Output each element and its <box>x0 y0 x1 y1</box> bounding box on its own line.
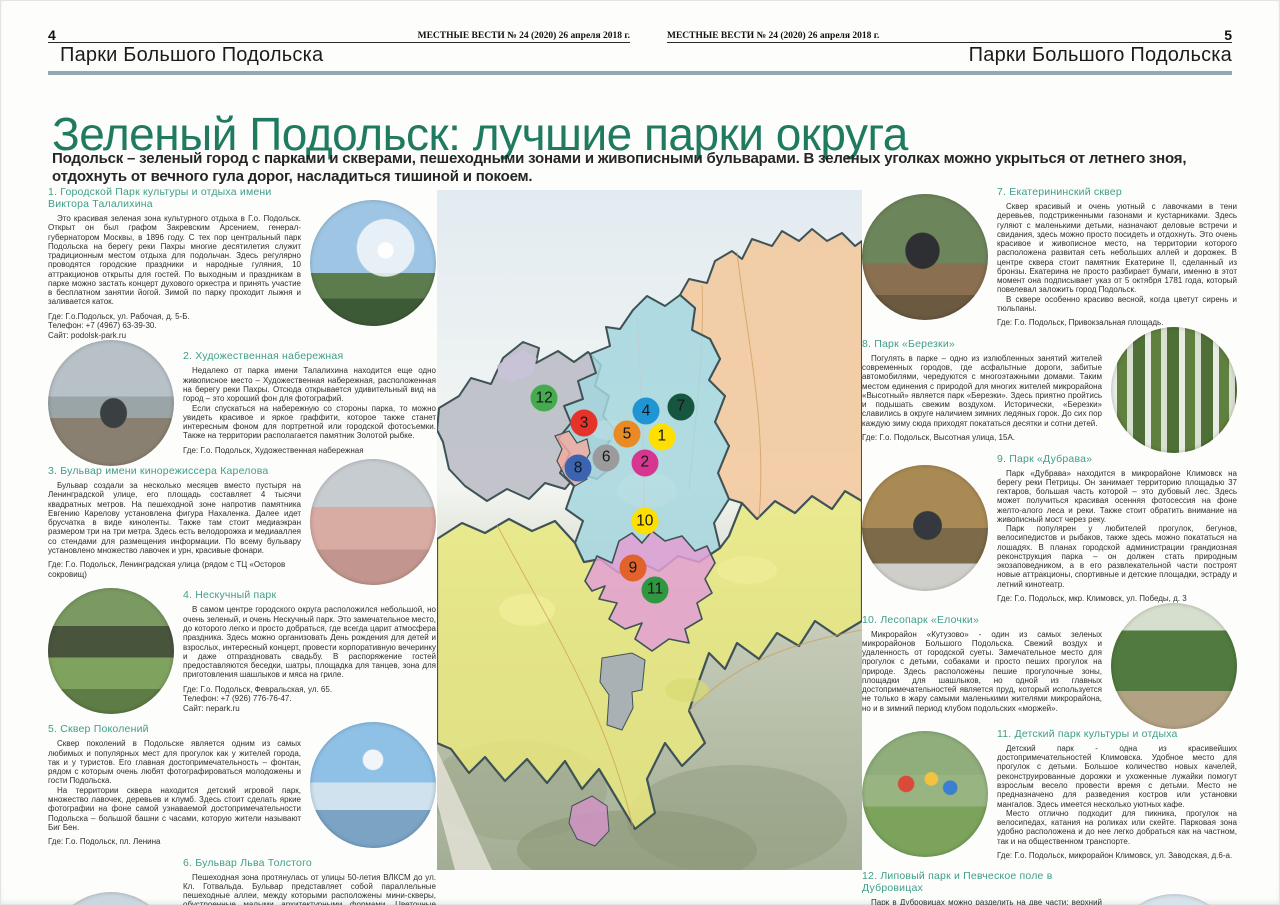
park-paragraph: В сквере особенно красиво весной, когда … <box>997 295 1237 314</box>
park-text: 11. Детский парк культуры и отдыха Детск… <box>997 728 1237 861</box>
park-body: Это красивая зеленая зона культурного от… <box>48 214 301 307</box>
park-body: Парк «Дубрава» находится в микрорайоне К… <box>997 469 1237 589</box>
column-left: 1. Городской Парк культуры и отдыха имен… <box>48 186 436 905</box>
park-footer: Где: Г.о. Подольск, Февральская, ул. 65.… <box>183 685 436 714</box>
lead-paragraph: Подольск – зеленый город с парками и скв… <box>52 150 1234 187</box>
park-location-line: Где: Г.о. Подольск, Ленинградская улица … <box>48 560 301 579</box>
park-location-line: Телефон: +7 (926) 776-76-47. <box>183 694 436 704</box>
park-body: Детский парк - одна из красивейших досто… <box>997 744 1237 846</box>
park-body: Пешеходная зона протянулась от улицы 50-… <box>183 873 436 905</box>
park-paragraph: Пешеходная зона протянулась от улицы 50-… <box>183 873 436 905</box>
park-item: 12. Липовый парк и Певческое поле в Дубр… <box>862 870 1237 905</box>
map-marker-10: 10 <box>631 508 658 535</box>
section-label-right: Парки Большого Подольска <box>969 44 1232 67</box>
park-location-line: Где: Г.о. Подольск, мкр. Климовск, ул. П… <box>997 594 1237 604</box>
park-text: 3. Бульвар имени кинорежиссера Карелова … <box>48 465 301 579</box>
photo-clock-tower-fountain <box>310 722 436 848</box>
newspaper-spread: 4 МЕСТНЫЕ ВЕСТИ № 24 (2020) 26 апреля 20… <box>0 0 1280 905</box>
park-item: 10. Лесопарк «Елочки» Микрорайон «Кутузо… <box>862 614 1237 718</box>
park-title: 1. Городской Парк культуры и отдыха имен… <box>48 186 301 210</box>
park-item: 2. Художественная набережная Недалеко от… <box>48 350 436 455</box>
park-location-line: Сайт: nepark.ru <box>183 704 436 714</box>
park-paragraph: Детский парк - одна из красивейших досто… <box>997 744 1237 809</box>
park-paragraph: Парк в Дубровицах можно разделить на две… <box>862 898 1102 905</box>
park-paragraph: Сквер поколений в Подольске является одн… <box>48 739 301 785</box>
photo-forest-path <box>1111 603 1237 729</box>
park-body: Сквер поколений в Подольске является одн… <box>48 739 301 832</box>
map-marker-8: 8 <box>565 455 592 482</box>
page-number-right: 5 <box>1224 28 1232 42</box>
park-item: 11. Детский парк культуры и отдыха Детск… <box>862 728 1237 861</box>
park-paragraph: Парк «Дубрава» находится в микрорайоне К… <box>997 469 1237 525</box>
photo-playground <box>862 731 988 857</box>
park-location-line: Где: Г.о. Подольск, микрорайон Климовск,… <box>997 851 1237 861</box>
park-text: 9. Парк «Дубрава» Парк «Дубрава» находит… <box>997 453 1237 604</box>
park-body: Сквер красивый и очень уютный с лавочкам… <box>997 202 1237 313</box>
park-text: 10. Лесопарк «Елочки» Микрорайон «Кутузо… <box>862 614 1102 718</box>
park-footer: Где: Г.о. Подольск, Художественная набер… <box>183 446 436 456</box>
park-location-line: Где: Г.о. Подольск, пл. Ленина <box>48 837 301 847</box>
park-item: 1. Городской Парк культуры и отдыха имен… <box>48 186 436 340</box>
park-paragraph: Парк популярен у любителей прогулок, бег… <box>997 524 1237 589</box>
map-marker-9: 9 <box>619 555 646 582</box>
photo-catherine-monument <box>862 194 988 320</box>
park-title: 8. Парк «Березки» <box>862 338 1102 350</box>
masthead-left: 4 МЕСТНЫЕ ВЕСТИ № 24 (2020) 26 апреля 20… <box>48 26 630 43</box>
park-location-line: Где: Г.о. Подольск, Февральская, ул. 65. <box>183 685 436 695</box>
park-location-line: Где: Г.о. Подольск, Художественная набер… <box>183 446 436 456</box>
map-marker-11: 11 <box>642 576 669 603</box>
park-location-line: Где: Г.о. Подольск, Высотная улица, 15А. <box>862 433 1102 443</box>
park-footer: Где: Г.о. Подольск, пл. Ленина <box>48 837 301 847</box>
park-paragraph: Погулять в парке – одно из излюбленных з… <box>862 354 1102 428</box>
park-item: 8. Парк «Березки» Погулять в парке – одн… <box>862 338 1237 443</box>
photo-embankment-monument <box>48 340 174 466</box>
park-text: 4. Нескучный парк В самом центре городск… <box>183 589 436 713</box>
park-footer: Где: Г.о. Подольск, микрорайон Климовск,… <box>997 851 1237 861</box>
park-footer: Где: Г.о. Подольск, Привокзальная площад… <box>997 318 1237 328</box>
park-location-line: Где: Г.о. Подольск, Привокзальная площад… <box>997 318 1237 328</box>
park-body: Микрорайон «Кутузово» - один из самых зе… <box>862 630 1102 713</box>
masthead-right: МЕСТНЫЕ ВЕСТИ № 24 (2020) 26 апреля 2018… <box>667 26 1232 43</box>
park-paragraph: Недалеко от парка имени Талалихина наход… <box>183 366 436 403</box>
park-text: 7. Екатерининский сквер Сквер красивый и… <box>997 186 1237 328</box>
column-right: 7. Екатерининский сквер Сквер красивый и… <box>862 186 1237 905</box>
park-body: В самом центре городского округа располо… <box>183 605 436 679</box>
park-paragraph: Микрорайон «Кутузово» - один из самых зе… <box>862 630 1102 713</box>
map-marker-5: 5 <box>613 421 640 448</box>
park-text: 12. Липовый парк и Певческое поле в Дубр… <box>862 870 1102 905</box>
photo-park-pavilion <box>48 588 174 714</box>
park-footer: Где: Г.о. Подольск, Ленинградская улица … <box>48 560 301 579</box>
park-paragraph: Место отлично подходит для пикника, прог… <box>997 809 1237 846</box>
photo-tolstoy-statue <box>48 892 174 905</box>
park-title: 4. Нескучный парк <box>183 589 436 601</box>
park-title: 9. Парк «Дубрава» <box>997 453 1237 465</box>
park-item: 6. Бульвар Льва Толстого Пешеходная зона… <box>48 857 436 905</box>
photo-dubrovitsy-aerial <box>1111 894 1237 905</box>
photo-boulevard-plaza <box>310 459 436 585</box>
park-title: 10. Лесопарк «Елочки» <box>862 614 1102 626</box>
park-item: 3. Бульвар имени кинорежиссера Карелова … <box>48 465 436 579</box>
photo-ferris-wheel <box>310 200 436 326</box>
park-item: 9. Парк «Дубрава» Парк «Дубрава» находит… <box>862 453 1237 604</box>
map-marker-7: 7 <box>667 393 694 420</box>
park-paragraph: Сквер красивый и очень уютный с лавочкам… <box>997 202 1237 295</box>
park-body: Погулять в парке – одно из излюбленных з… <box>862 354 1102 428</box>
map-marker-6: 6 <box>593 444 620 471</box>
park-text: 6. Бульвар Льва Толстого Пешеходная зона… <box>183 857 436 905</box>
park-paragraph: На территории сквера находится детский и… <box>48 786 301 832</box>
map-markers: 123456789101112 <box>437 190 862 870</box>
park-body: Бульвар создали за несколько месяцев вме… <box>48 481 301 555</box>
park-text: 8. Парк «Березки» Погулять в парке – одн… <box>862 338 1102 443</box>
map-marker-12: 12 <box>531 385 558 412</box>
park-footer: Где: Г.о. Подольск, Высотная улица, 15А. <box>862 433 1102 443</box>
park-title: 5. Сквер Поколений <box>48 723 301 735</box>
divider-rule <box>48 71 1232 75</box>
park-location-line: Телефон: +7 (4967) 63-39-30. <box>48 321 301 331</box>
park-title: 7. Екатерининский сквер <box>997 186 1237 198</box>
city-districts-map: 123456789101112 <box>437 190 862 870</box>
masthead-title-left: МЕСТНЫЕ ВЕСТИ № 24 (2020) 26 апреля 2018… <box>418 31 630 42</box>
park-title: 3. Бульвар имени кинорежиссера Карелова <box>48 465 301 477</box>
map-marker-3: 3 <box>571 410 598 437</box>
park-text: 2. Художественная набережная Недалеко от… <box>183 350 436 455</box>
photo-birch-forest <box>1111 327 1237 453</box>
park-paragraph: Бульвар создали за несколько месяцев вме… <box>48 481 301 555</box>
park-title: 11. Детский парк культуры и отдыха <box>997 728 1237 740</box>
park-footer: Где: Г.о.Подольск, ул. Рабочая, д. 5-Б.Т… <box>48 312 301 341</box>
page-number-left: 4 <box>48 28 56 42</box>
section-label-left: Парки Большого Подольска <box>60 44 323 67</box>
park-paragraph: Это красивая зеленая зона культурного от… <box>48 214 301 307</box>
park-text: 5. Сквер Поколений Сквер поколений в Под… <box>48 723 301 846</box>
park-body: Недалеко от парка имени Талалихина наход… <box>183 366 436 440</box>
park-item: 7. Екатерининский сквер Сквер красивый и… <box>862 186 1237 328</box>
map-marker-4: 4 <box>633 398 660 425</box>
map-marker-2: 2 <box>631 449 658 476</box>
park-text: 1. Городской Парк культуры и отдыха имен… <box>48 186 301 340</box>
park-title: 12. Липовый парк и Певческое поле в Дубр… <box>862 870 1102 894</box>
park-location-line: Где: Г.о.Подольск, ул. Рабочая, д. 5-Б. <box>48 312 301 322</box>
park-title: 6. Бульвар Льва Толстого <box>183 857 436 869</box>
park-title: 2. Художественная набережная <box>183 350 436 362</box>
map-marker-1: 1 <box>648 423 675 450</box>
masthead-title-right: МЕСТНЫЕ ВЕСТИ № 24 (2020) 26 апреля 2018… <box>667 31 879 42</box>
park-paragraph: Если спускаться на набережную со стороны… <box>183 404 436 441</box>
photo-dubrava-monument <box>862 465 988 591</box>
park-body: Парк в Дубровицах можно разделить на две… <box>862 898 1102 905</box>
park-footer: Где: Г.о. Подольск, мкр. Климовск, ул. П… <box>997 594 1237 604</box>
park-paragraph: В самом центре городского округа располо… <box>183 605 436 679</box>
park-location-line: Сайт: podolsk-park.ru <box>48 331 301 341</box>
park-item: 4. Нескучный парк В самом центре городск… <box>48 589 436 713</box>
park-item: 5. Сквер Поколений Сквер поколений в Под… <box>48 723 436 846</box>
